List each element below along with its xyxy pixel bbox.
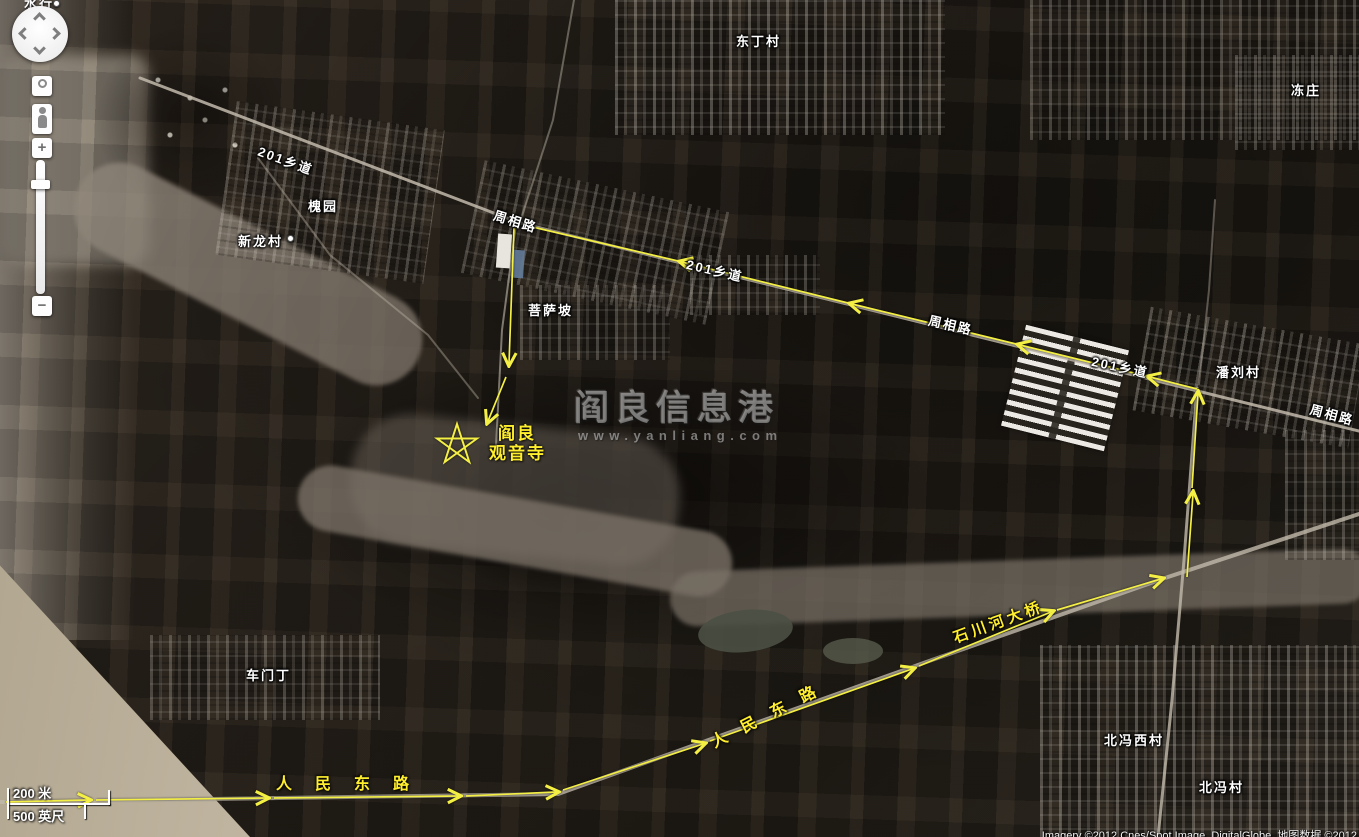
zoom-slider-handle[interactable] <box>31 180 50 189</box>
village-dongding <box>615 0 945 135</box>
watermark-url: www.yanliang.com <box>578 428 783 443</box>
scale-bar <box>7 803 110 805</box>
village-pusapo <box>520 285 670 360</box>
zoom-out-button[interactable]: − <box>32 296 52 316</box>
pan-right-button[interactable] <box>48 27 61 40</box>
pegman-button[interactable] <box>32 104 52 134</box>
village-right-edge <box>1285 430 1359 560</box>
pegman-icon <box>39 107 46 114</box>
village-beifeng <box>1040 645 1359 837</box>
zoom-in-button[interactable]: + <box>32 138 52 158</box>
blue-building <box>511 250 525 279</box>
pan-left-button[interactable] <box>18 27 31 40</box>
satellite-map[interactable]: 水行 阎良 观音寺 东丁村冻庄201乡道周相路槐园新龙村菩萨坡201乡道周相路2… <box>0 0 1359 837</box>
center-dot-icon <box>38 79 47 88</box>
pan-control[interactable] <box>12 6 68 62</box>
pan-down-button[interactable] <box>33 42 46 55</box>
attribution-text: Imagery ©2012 Cnes/Spot Image, DigitalGl… <box>1042 827 1357 837</box>
watermark-title: 阎良信息港 <box>574 380 779 431</box>
scale-feet-label: 500 英尺 <box>13 806 64 825</box>
village-road-mid <box>690 255 820 315</box>
center-map-button[interactable] <box>32 76 52 96</box>
village-chemending <box>150 635 380 720</box>
white-building <box>496 234 512 269</box>
pan-up-button[interactable] <box>33 12 46 25</box>
village-huaiyuan <box>215 101 445 284</box>
village-dongzhuang <box>1235 55 1359 150</box>
pond-small <box>823 638 883 664</box>
scale-meters-label: 200 米 <box>13 783 51 802</box>
